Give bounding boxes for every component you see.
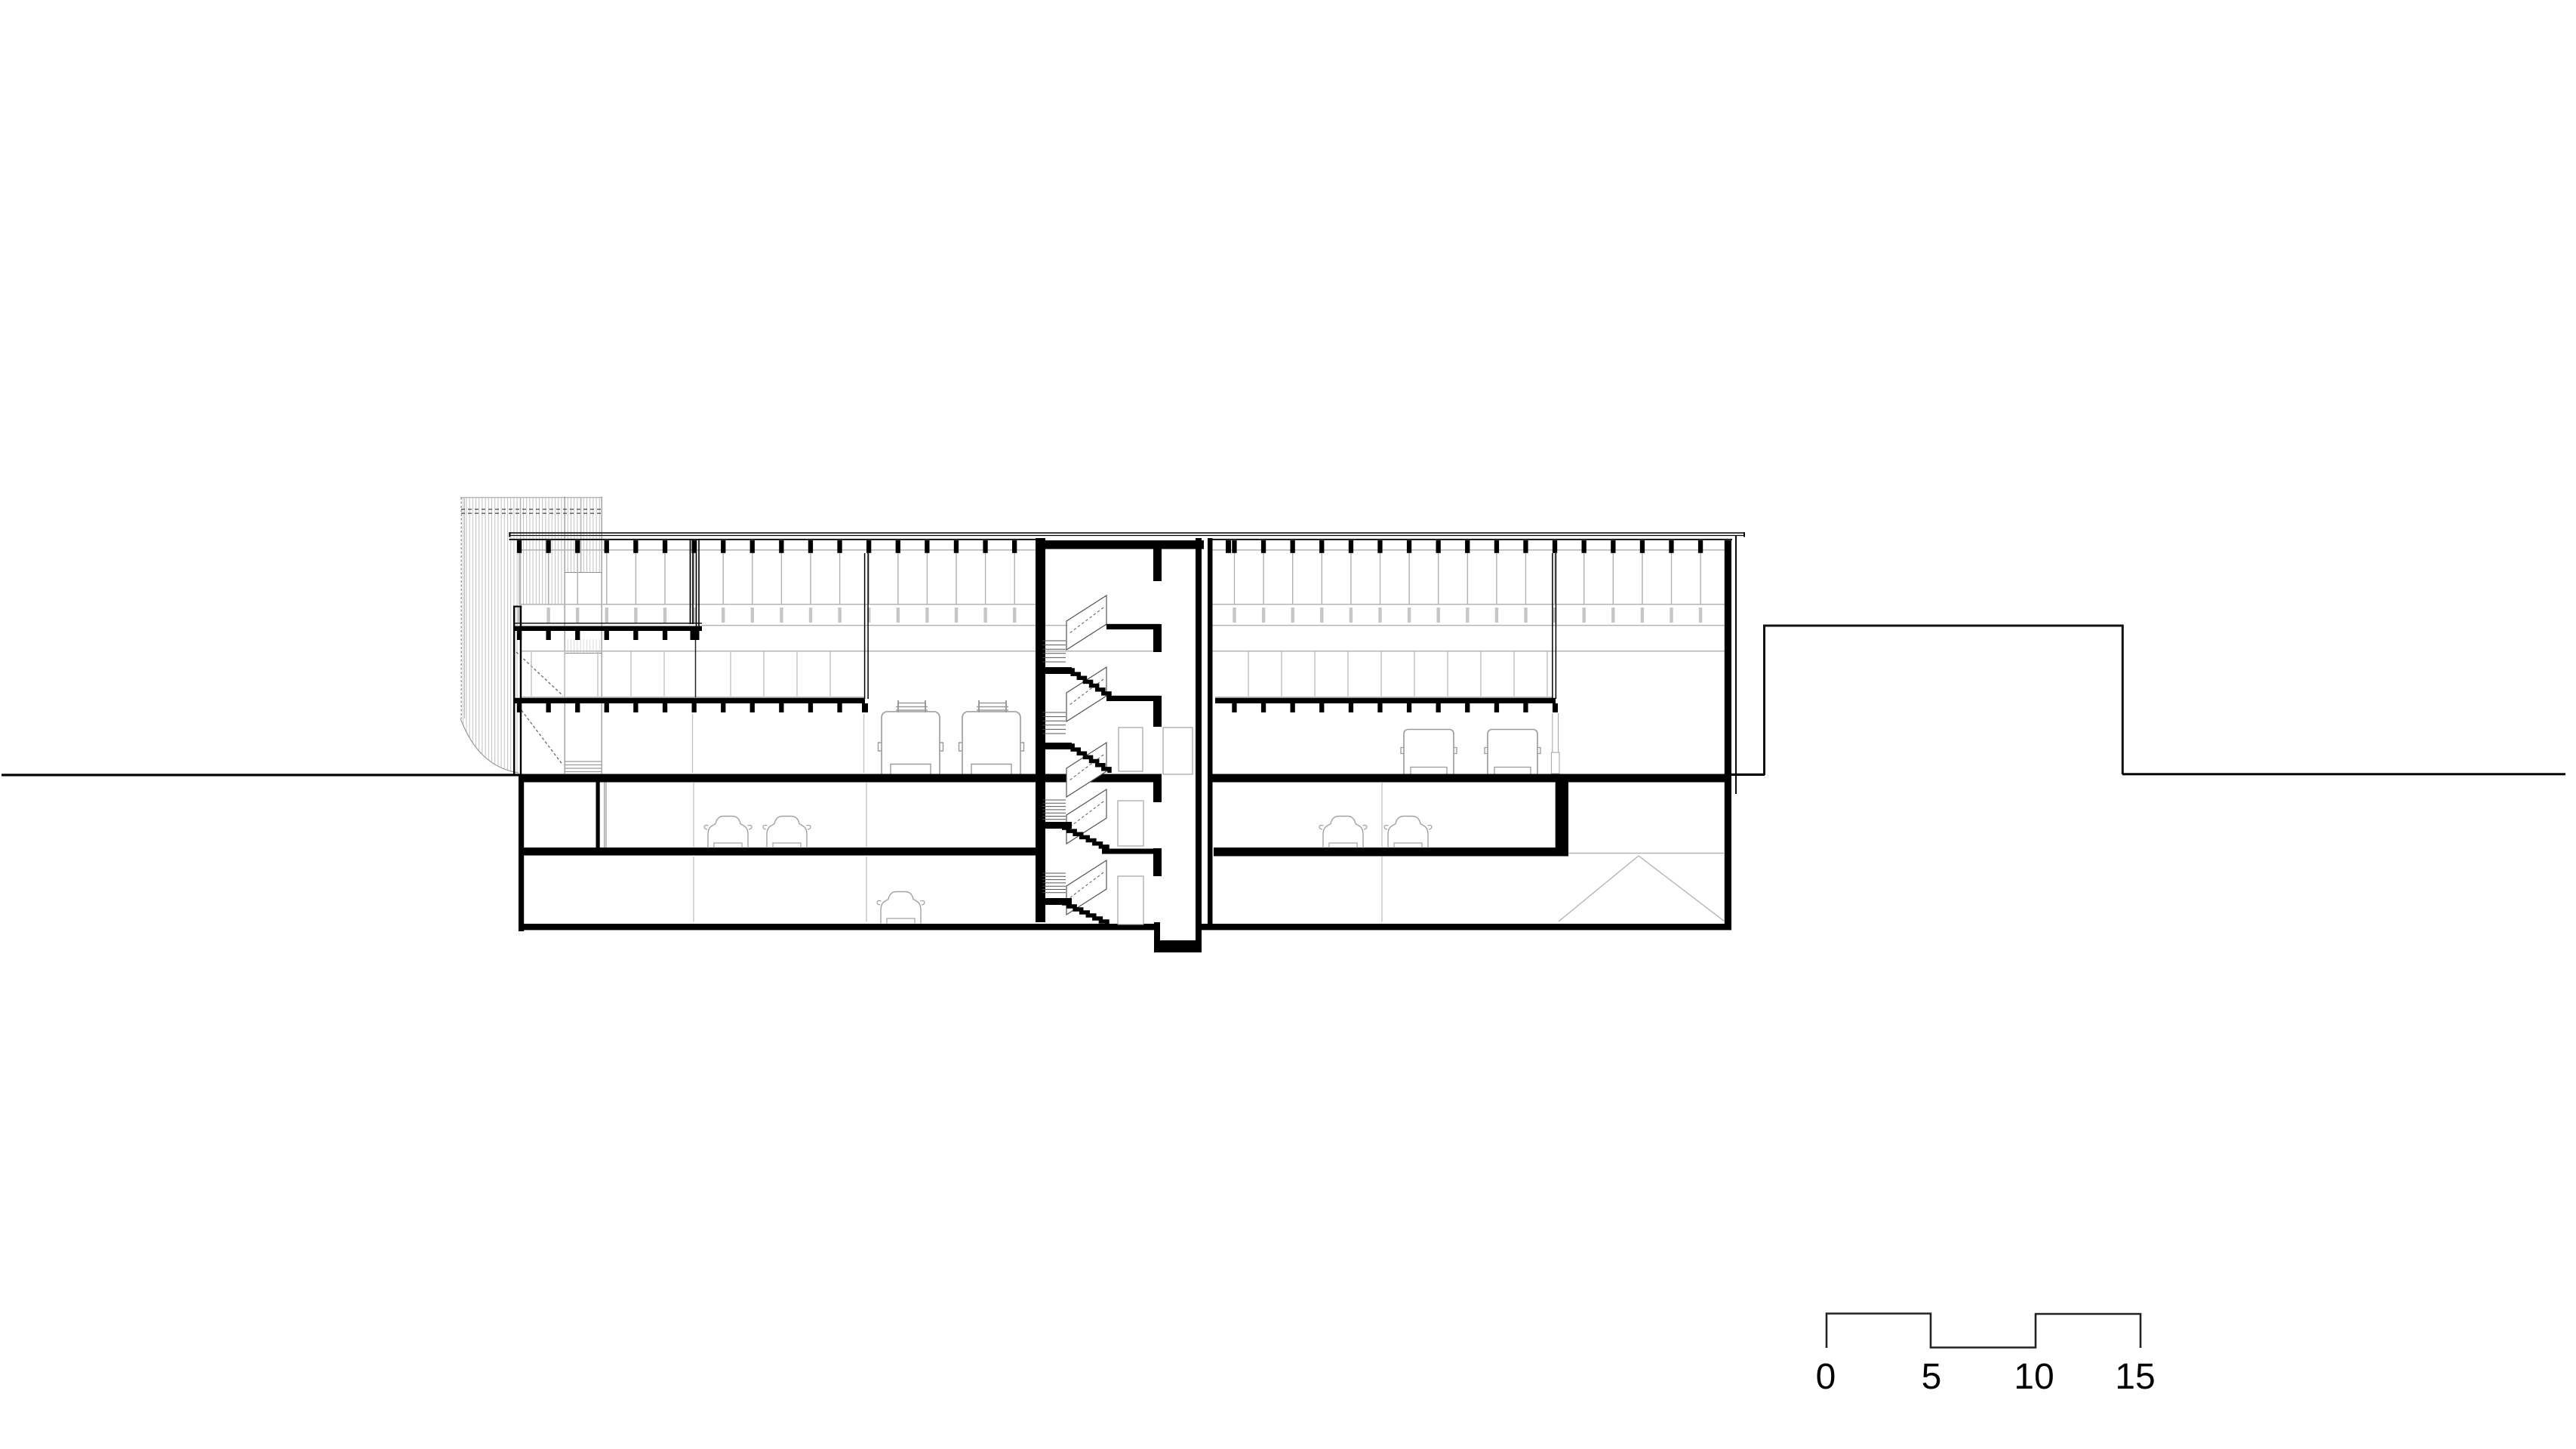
svg-text:15: 15 xyxy=(2115,1357,2155,1397)
svg-text:5: 5 xyxy=(1922,1357,1942,1397)
svg-text:10: 10 xyxy=(2014,1357,2054,1397)
svg-text:0: 0 xyxy=(1816,1357,1836,1397)
